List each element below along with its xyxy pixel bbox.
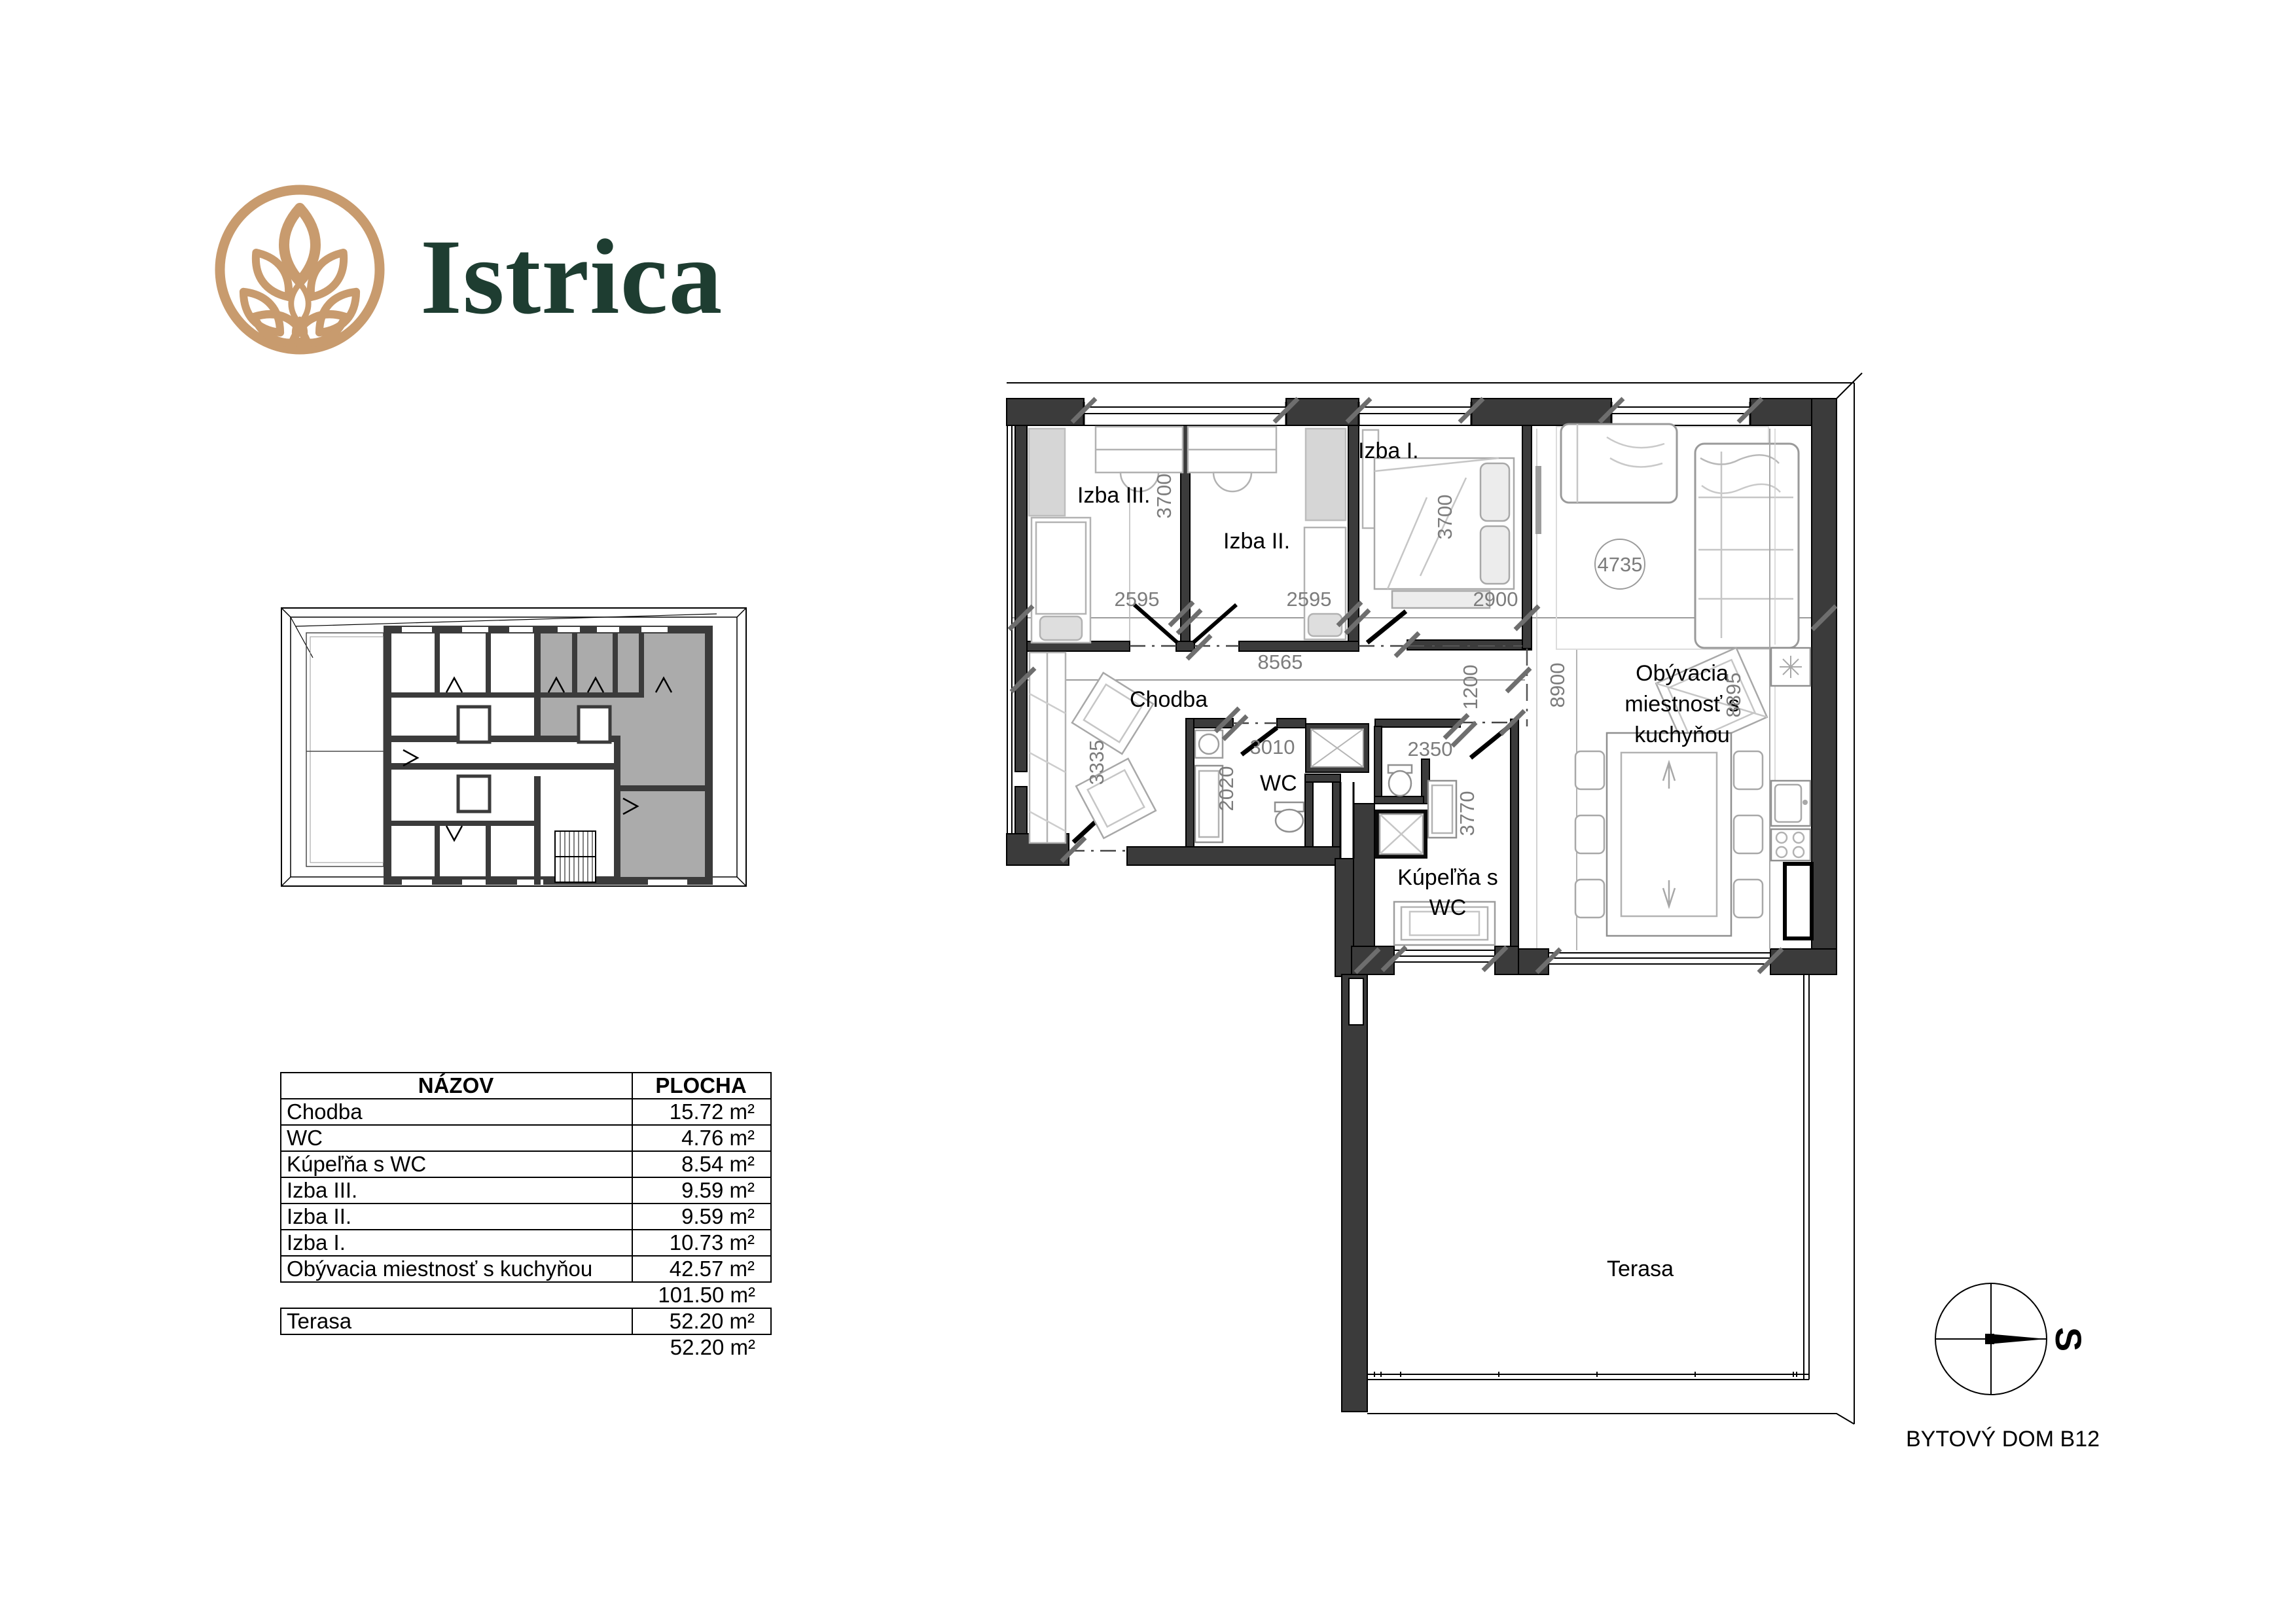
svg-text:8895: 8895: [1722, 673, 1745, 718]
svg-text:2350: 2350: [1408, 738, 1453, 760]
svg-text:Chodba: Chodba: [1130, 687, 1208, 712]
svg-text:Izba I.: Izba I.: [1358, 438, 1419, 463]
svg-text:Izba II.: Izba II.: [1223, 529, 1290, 554]
svg-text:1200: 1200: [1459, 665, 1482, 710]
svg-text:Terasa: Terasa: [1607, 1257, 1674, 1281]
svg-text:2595: 2595: [1115, 588, 1160, 611]
svg-text:8565: 8565: [1258, 651, 1303, 673]
svg-text:WC: WC: [1260, 771, 1297, 796]
svg-text:2900: 2900: [1473, 588, 1518, 611]
svg-text:3700: 3700: [1153, 474, 1175, 519]
svg-text:2020: 2020: [1215, 766, 1238, 811]
svg-text:3335: 3335: [1085, 740, 1108, 785]
svg-text:kuchyňou: kuchyňou: [1634, 722, 1730, 747]
svg-text:8900: 8900: [1546, 663, 1569, 708]
svg-text:3700: 3700: [1433, 495, 1456, 540]
svg-text:Obývacia: Obývacia: [1636, 661, 1729, 686]
svg-text:Izba III.: Izba III.: [1077, 483, 1151, 508]
svg-text:3010: 3010: [1250, 736, 1295, 758]
svg-text:2595: 2595: [1287, 588, 1332, 611]
svg-text:3770: 3770: [1456, 791, 1479, 836]
svg-text:WC: WC: [1429, 895, 1467, 920]
svg-text:Kúpeľňa s: Kúpeľňa s: [1397, 865, 1498, 890]
svg-text:4735: 4735: [1598, 553, 1643, 576]
